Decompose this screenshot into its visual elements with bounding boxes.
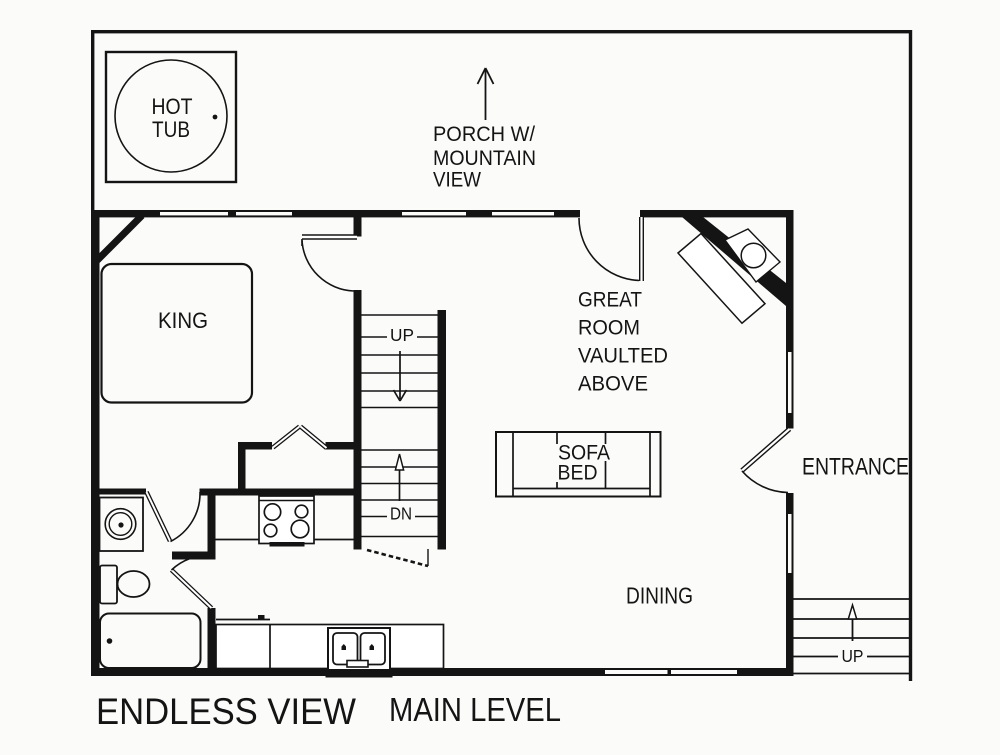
svg-text:DN: DN (390, 504, 412, 524)
svg-text:PORCH W/: PORCH W/ (433, 123, 535, 146)
svg-text:ROOM: ROOM (578, 317, 640, 340)
svg-text:UP: UP (390, 325, 414, 345)
svg-text:MAIN LEVEL: MAIN LEVEL (389, 691, 561, 728)
svg-text:HOT: HOT (152, 94, 193, 119)
svg-text:ENTRANCE: ENTRANCE (802, 454, 909, 481)
svg-text:UP: UP (842, 646, 864, 666)
svg-text:BED: BED (558, 462, 598, 485)
svg-text:MOUNTAIN: MOUNTAIN (433, 147, 536, 170)
svg-text:GREAT: GREAT (578, 289, 642, 312)
svg-text:VAULTED: VAULTED (578, 345, 668, 368)
svg-text:ABOVE: ABOVE (578, 373, 648, 396)
svg-text:DINING: DINING (626, 583, 693, 609)
svg-text:ENDLESS VIEW: ENDLESS VIEW (96, 691, 356, 732)
svg-text:TUB: TUB (152, 117, 190, 142)
svg-text:KING: KING (158, 308, 208, 333)
svg-text:VIEW: VIEW (433, 169, 481, 192)
